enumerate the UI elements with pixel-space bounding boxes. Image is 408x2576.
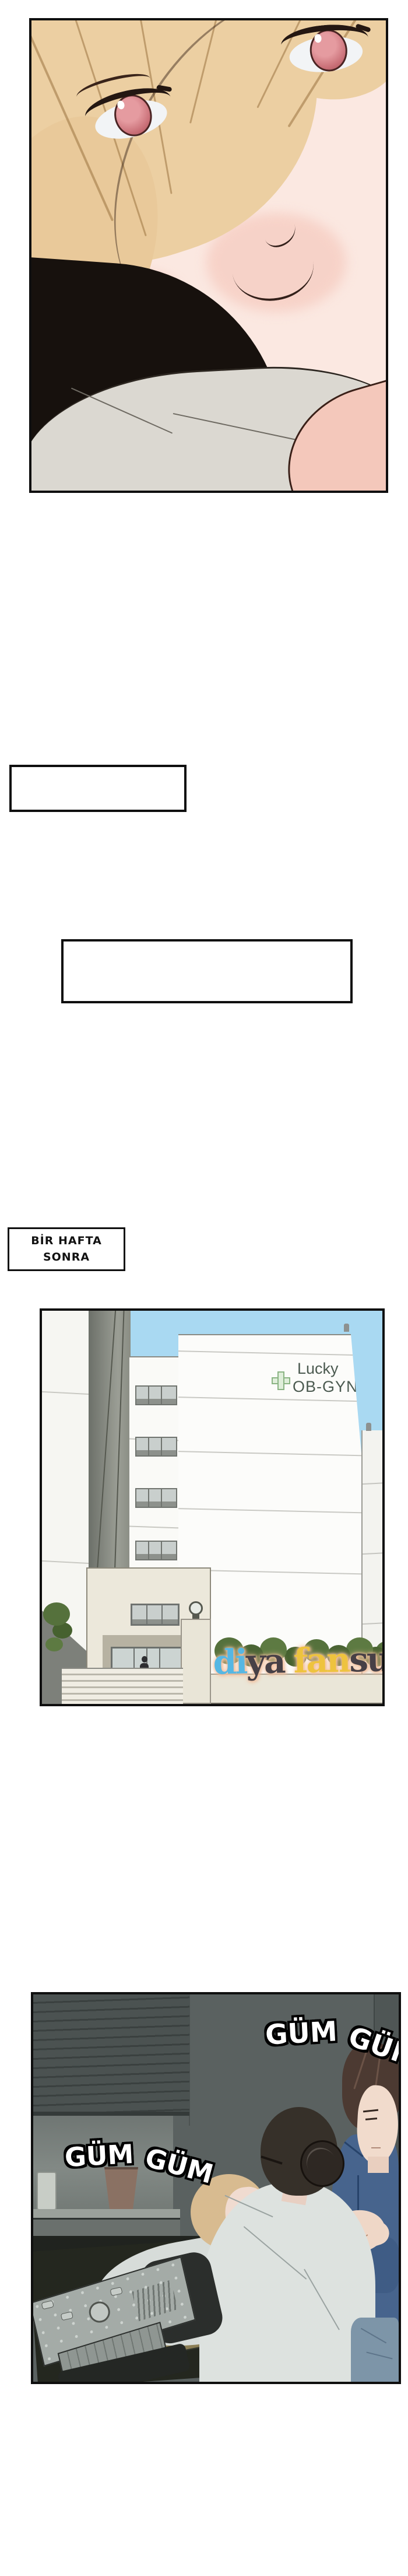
facade-line <box>363 1552 385 1555</box>
webtoon-page: BİR HAFTA SONRA <box>0 0 408 2576</box>
floor-line <box>178 1350 377 1356</box>
time-caption-line1: BİR HAFTA <box>31 1233 102 1249</box>
bush <box>43 1602 70 1626</box>
window-blinds <box>33 1994 189 2116</box>
lamp-base <box>192 1614 199 1619</box>
window <box>135 1541 177 1560</box>
right-eye <box>279 19 372 84</box>
shirt-fold-line <box>244 2226 307 2280</box>
medical-cross-icon <box>272 1371 290 1390</box>
entrance-stairs <box>62 1668 183 1705</box>
caption-box-time: BİR HAFTA SONRA <box>8 1227 125 1271</box>
watermark-part-sub: sub <box>349 1639 385 1680</box>
panel-ultrasound-room: GÜM GÜM GÜM GÜM <box>31 1992 401 2384</box>
cup-on-sill <box>37 2172 57 2210</box>
shirt-fold-line <box>304 2269 340 2330</box>
facade-line <box>42 1391 90 1395</box>
sfx-gum-gum-left: GÜM GÜM <box>65 2140 216 2171</box>
rooftop-figure <box>366 1423 371 1431</box>
entrance-upper-window <box>131 1604 180 1626</box>
person-at-door-head <box>142 1656 147 1662</box>
watermark-part-ya: ya <box>246 1641 284 1681</box>
clinic-sign-line1: Lucky <box>297 1360 339 1378</box>
caption-box-empty-2 <box>61 939 353 1003</box>
time-caption-line2: SONRA <box>43 1249 90 1266</box>
window <box>135 1385 177 1405</box>
lamp-globe <box>189 1601 203 1615</box>
window-sill <box>33 2209 180 2220</box>
watermark-part-fan: fan <box>293 1640 350 1681</box>
floor-line <box>178 1451 377 1457</box>
sfx-gum-gum-top: GÜM GÜM <box>265 2016 401 2053</box>
caption-box-empty-1 <box>9 765 187 812</box>
rooftop-figure <box>344 1324 349 1332</box>
sfx-word: GÜM <box>64 2138 135 2173</box>
window <box>135 1437 177 1457</box>
floor-line <box>129 1525 181 1528</box>
facade-line <box>363 1622 385 1625</box>
entrance-pillar <box>181 1619 211 1704</box>
clinic-sign-line2: OB-GYN <box>293 1378 358 1396</box>
panel-face-closeup <box>29 18 388 493</box>
floor-line <box>178 1508 377 1514</box>
window <box>135 1488 177 1508</box>
watermark-part-di: di <box>213 1642 247 1682</box>
pants-fold-line <box>361 2328 386 2344</box>
pants-fold-line <box>366 2351 392 2359</box>
man-neck <box>368 2157 389 2173</box>
sfx-word: GÜM <box>265 2015 338 2051</box>
facade-line <box>363 1482 385 1485</box>
man-mouth <box>371 2147 381 2148</box>
panel-clinic-exterior: Lucky OB-GYN diyafansub <box>40 1308 385 1706</box>
patient-pants <box>351 2318 399 2382</box>
window-sill-front <box>33 2220 180 2237</box>
fansub-watermark: diyafansub <box>213 1639 385 1705</box>
facade-line <box>42 1560 90 1564</box>
